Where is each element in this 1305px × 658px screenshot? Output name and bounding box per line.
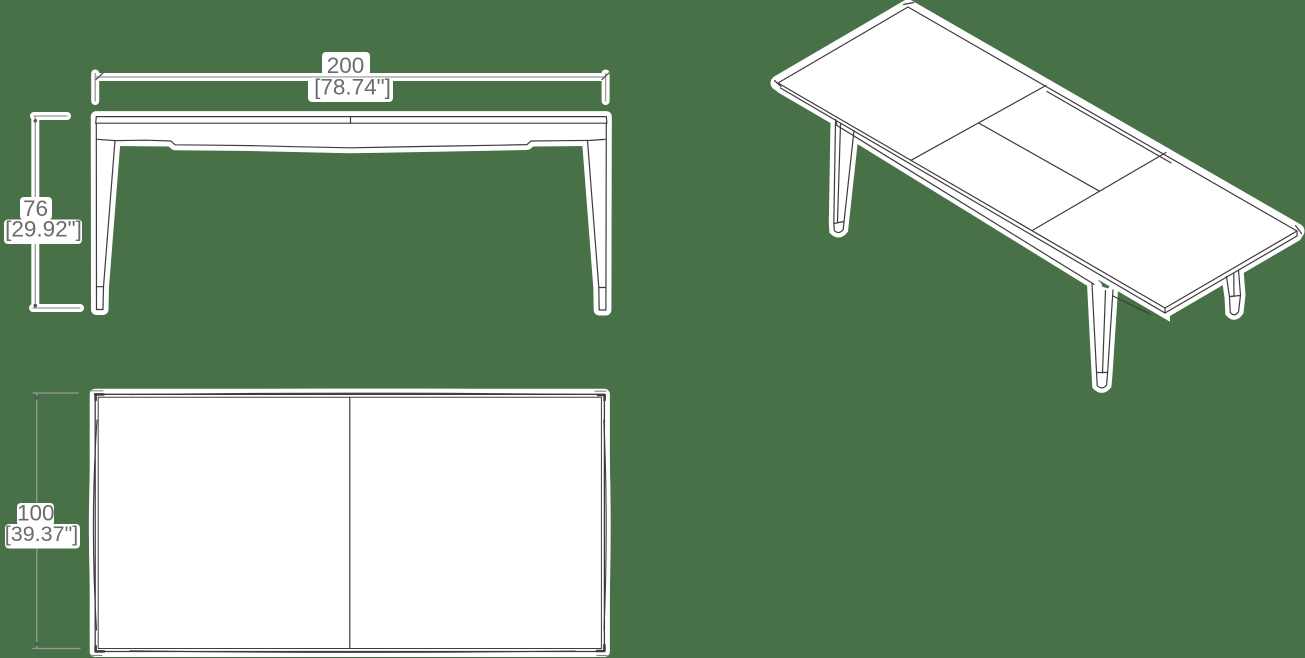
svg-text:[39.37"]: [39.37"] [5,522,78,546]
svg-text:[29.92"]: [29.92"] [5,217,82,242]
svg-text:[78.74"]: [78.74"] [314,75,391,100]
